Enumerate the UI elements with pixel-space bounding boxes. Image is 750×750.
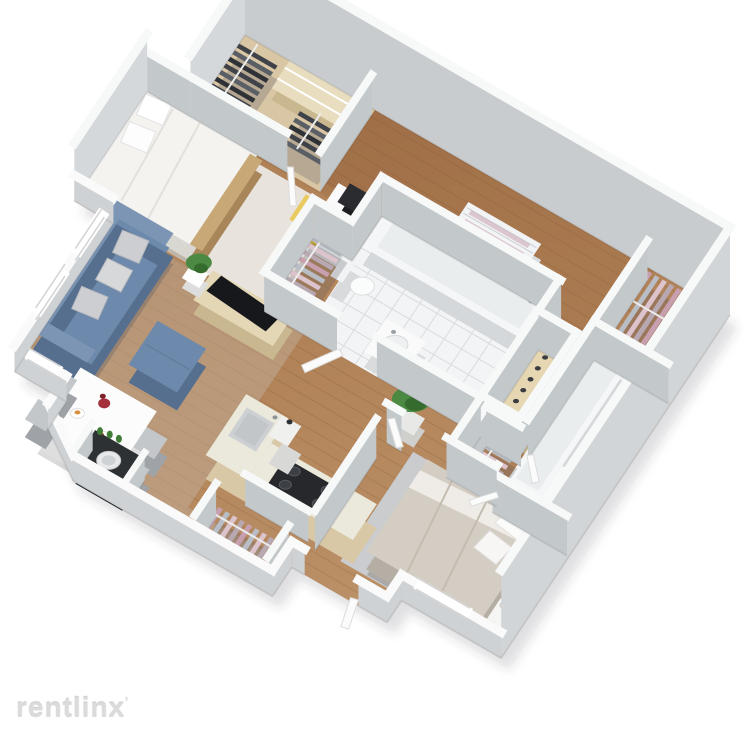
kettle [287, 419, 293, 424]
sink1-faucet [391, 330, 396, 334]
flowers [98, 398, 110, 408]
kitchen-faucet [272, 415, 277, 419]
green-bottle [97, 427, 103, 435]
toilet1-bowl [350, 277, 374, 295]
plant-small-leaf [194, 263, 208, 273]
green-bottle [107, 431, 113, 439]
shoe [520, 388, 526, 392]
watermark: rentlinx' [16, 692, 129, 724]
green-bottle [116, 435, 122, 443]
floorplan-image: rentlinx' [0, 0, 750, 750]
watermark-mark: ' [125, 696, 129, 710]
shoe [528, 377, 534, 381]
washer-drum [102, 455, 116, 465]
food [75, 410, 81, 414]
shoe [535, 366, 541, 370]
shoe [513, 399, 519, 403]
watermark-text: rentlinx [16, 692, 125, 723]
floorplan-3d-rendering [0, 0, 750, 750]
cooktop-burner [279, 480, 291, 489]
flowers [100, 394, 106, 399]
